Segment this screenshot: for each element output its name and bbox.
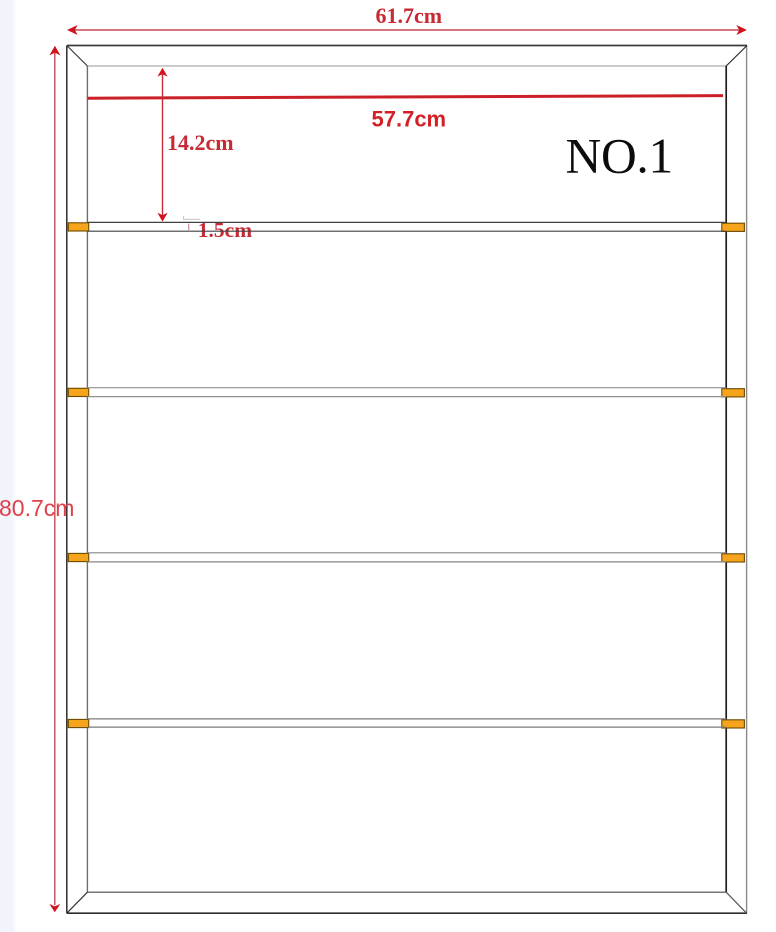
svg-text:57.7cm: 57.7cm: [372, 106, 447, 131]
svg-text:NO.1: NO.1: [566, 129, 673, 184]
svg-text:80.7cm: 80.7cm: [0, 495, 74, 521]
svg-text:61.7cm: 61.7cm: [376, 3, 443, 28]
svg-text:14.2cm: 14.2cm: [167, 130, 234, 155]
svg-text:1.5cm: 1.5cm: [198, 218, 252, 242]
